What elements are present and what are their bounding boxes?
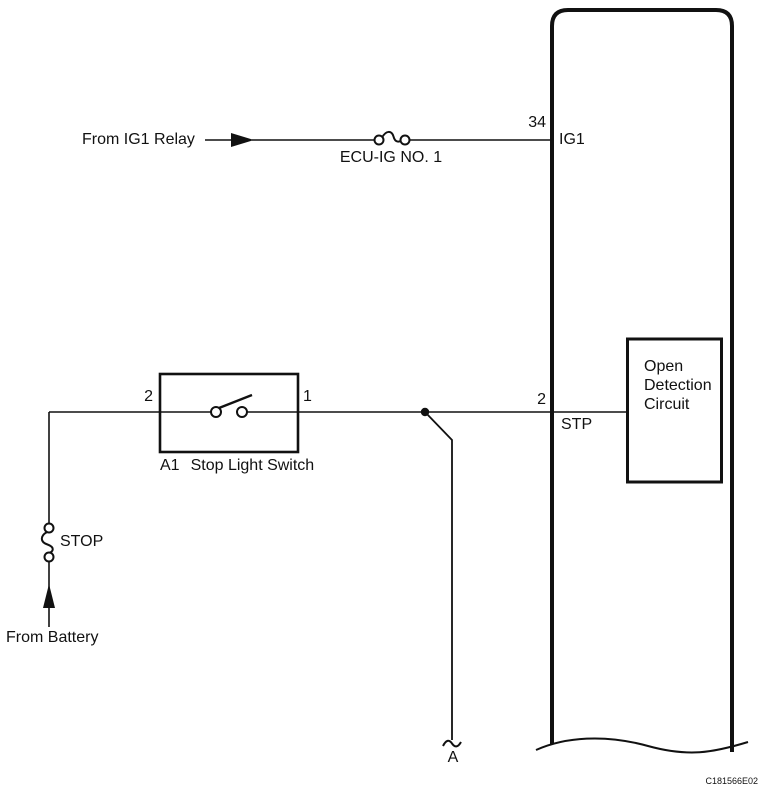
stp-branch bbox=[49, 408, 627, 416]
flow-arrow-right-icon bbox=[231, 133, 254, 147]
fuse-ecu-ig-element bbox=[382, 132, 403, 142]
switch-box bbox=[160, 374, 298, 452]
flow-arrow-up-icon bbox=[43, 584, 55, 608]
fuse-stop-bottom-terminal bbox=[45, 553, 54, 562]
break-point-label: A bbox=[444, 749, 462, 767]
pin-stp-name: STP bbox=[561, 416, 592, 434]
battery-branch bbox=[42, 412, 55, 627]
open-detection-line1: Open bbox=[644, 357, 712, 376]
ig1-branch bbox=[205, 132, 552, 147]
fuse-ecu-ig-left-terminal bbox=[375, 136, 384, 145]
open-detection-circuit-label: Open Detection Circuit bbox=[644, 357, 712, 414]
break-a-branch bbox=[425, 412, 461, 746]
switch-label: A1Stop Light Switch bbox=[160, 457, 314, 475]
break-tilde-icon bbox=[443, 741, 461, 747]
pin-ig1-name: IG1 bbox=[559, 131, 585, 149]
battery-source-label: From Battery bbox=[6, 629, 98, 647]
switch-name: Stop Light Switch bbox=[191, 457, 315, 474]
switch-id: A1 bbox=[160, 457, 180, 474]
pin-ig1-number: 34 bbox=[512, 114, 546, 132]
wire-junction-diagonal bbox=[425, 412, 452, 740]
open-detection-line2: Detection bbox=[644, 376, 712, 395]
ecu-bottom-break-wave bbox=[536, 738, 748, 752]
ig1-relay-source-label: From IG1 Relay bbox=[82, 131, 195, 149]
pin-stp-number: 2 bbox=[512, 391, 546, 409]
fuse-ecu-ig-icon bbox=[375, 132, 410, 145]
stop-light-switch bbox=[160, 374, 298, 452]
switch-contact-left bbox=[211, 407, 221, 417]
fuse-ecu-ig-label: ECU-IG NO. 1 bbox=[325, 149, 457, 167]
fuse-stop-element bbox=[42, 532, 53, 554]
fuse-stop-label: STOP bbox=[60, 533, 103, 551]
fuse-stop-icon bbox=[42, 524, 54, 562]
figure-code: C181566E02 bbox=[648, 777, 758, 787]
switch-lever bbox=[219, 395, 252, 408]
switch-contact-right bbox=[237, 407, 247, 417]
switch-pin-right-number: 1 bbox=[303, 388, 312, 406]
fuse-stop-top-terminal bbox=[45, 524, 54, 533]
switch-pin-left-number: 2 bbox=[121, 388, 153, 406]
wiring-diagram: From IG1 Relay ECU-IG NO. 1 34 IG1 2 1 A… bbox=[0, 0, 764, 796]
fuse-ecu-ig-right-terminal bbox=[401, 136, 410, 145]
open-detection-line3: Circuit bbox=[644, 395, 712, 414]
